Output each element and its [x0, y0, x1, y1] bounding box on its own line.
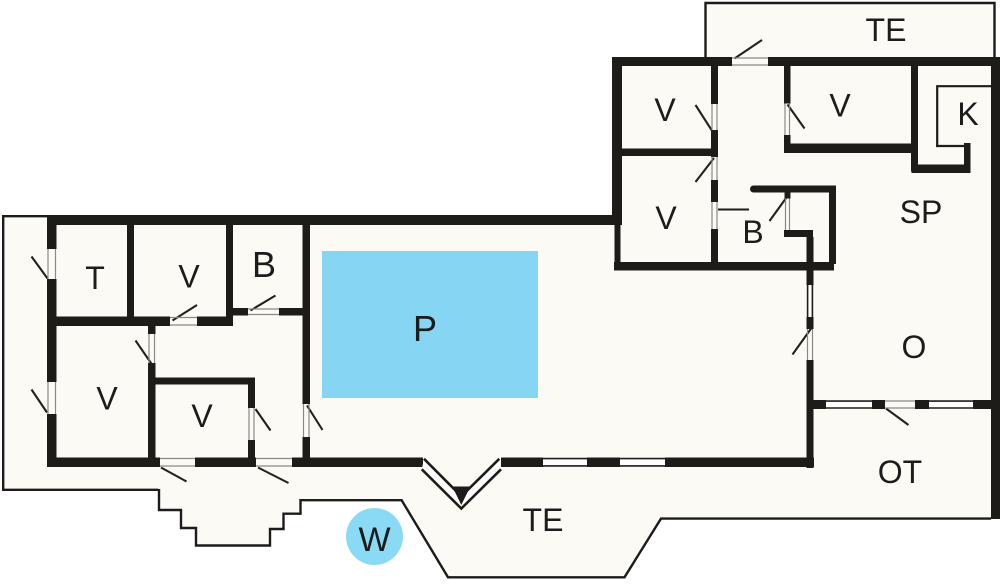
svg-text:O: O: [902, 329, 927, 365]
svg-text:V: V: [178, 259, 200, 295]
svg-text:V: V: [829, 88, 851, 124]
svg-text:OT: OT: [878, 454, 922, 490]
svg-text:V: V: [191, 398, 213, 434]
svg-text:TE: TE: [866, 12, 907, 48]
svg-text:B: B: [742, 214, 763, 250]
svg-text:P: P: [413, 308, 437, 349]
svg-text:T: T: [85, 260, 105, 296]
svg-text:B: B: [252, 244, 276, 285]
svg-text:SP: SP: [900, 194, 943, 230]
svg-text:V: V: [655, 200, 677, 236]
svg-text:TE: TE: [523, 502, 564, 538]
svg-text:K: K: [957, 96, 978, 132]
svg-text:V: V: [654, 92, 676, 128]
svg-text:W: W: [358, 521, 390, 559]
svg-text:V: V: [96, 381, 118, 417]
